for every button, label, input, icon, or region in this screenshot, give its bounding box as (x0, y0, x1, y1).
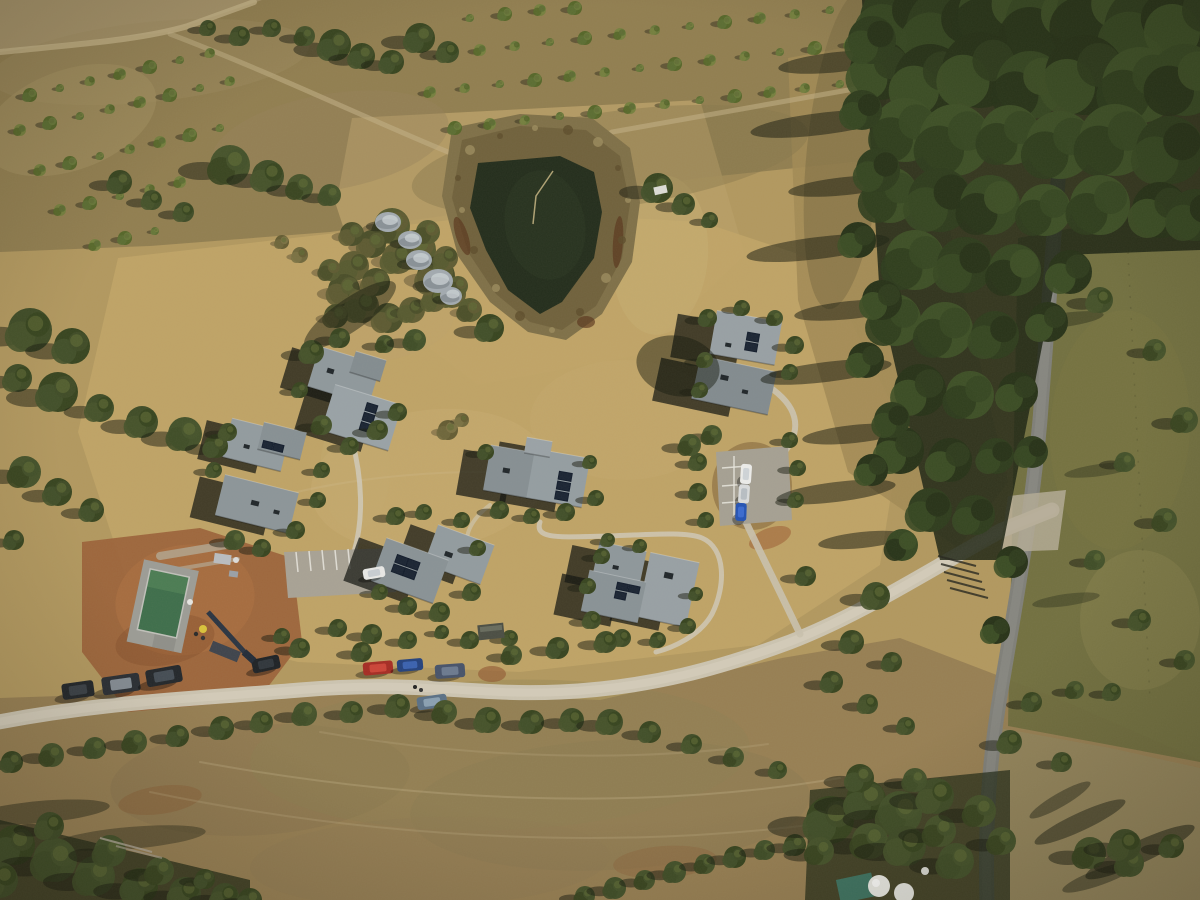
aerial-photo-figure (0, 0, 1200, 900)
aerial-photo-svg (0, 0, 1200, 900)
aerial-photo (0, 0, 1200, 900)
photo-vignette (0, 0, 1200, 900)
